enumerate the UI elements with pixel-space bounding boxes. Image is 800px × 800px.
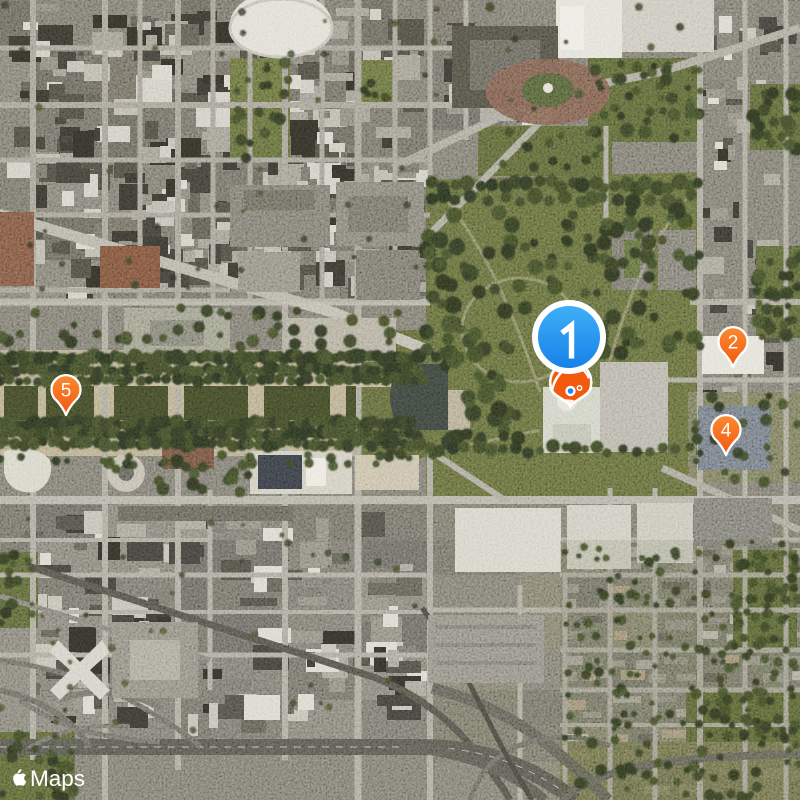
- svg-text:4: 4: [721, 421, 732, 442]
- svg-text:5: 5: [61, 381, 72, 402]
- svg-text:2: 2: [728, 333, 739, 354]
- svg-text:Maps: Maps: [30, 766, 85, 791]
